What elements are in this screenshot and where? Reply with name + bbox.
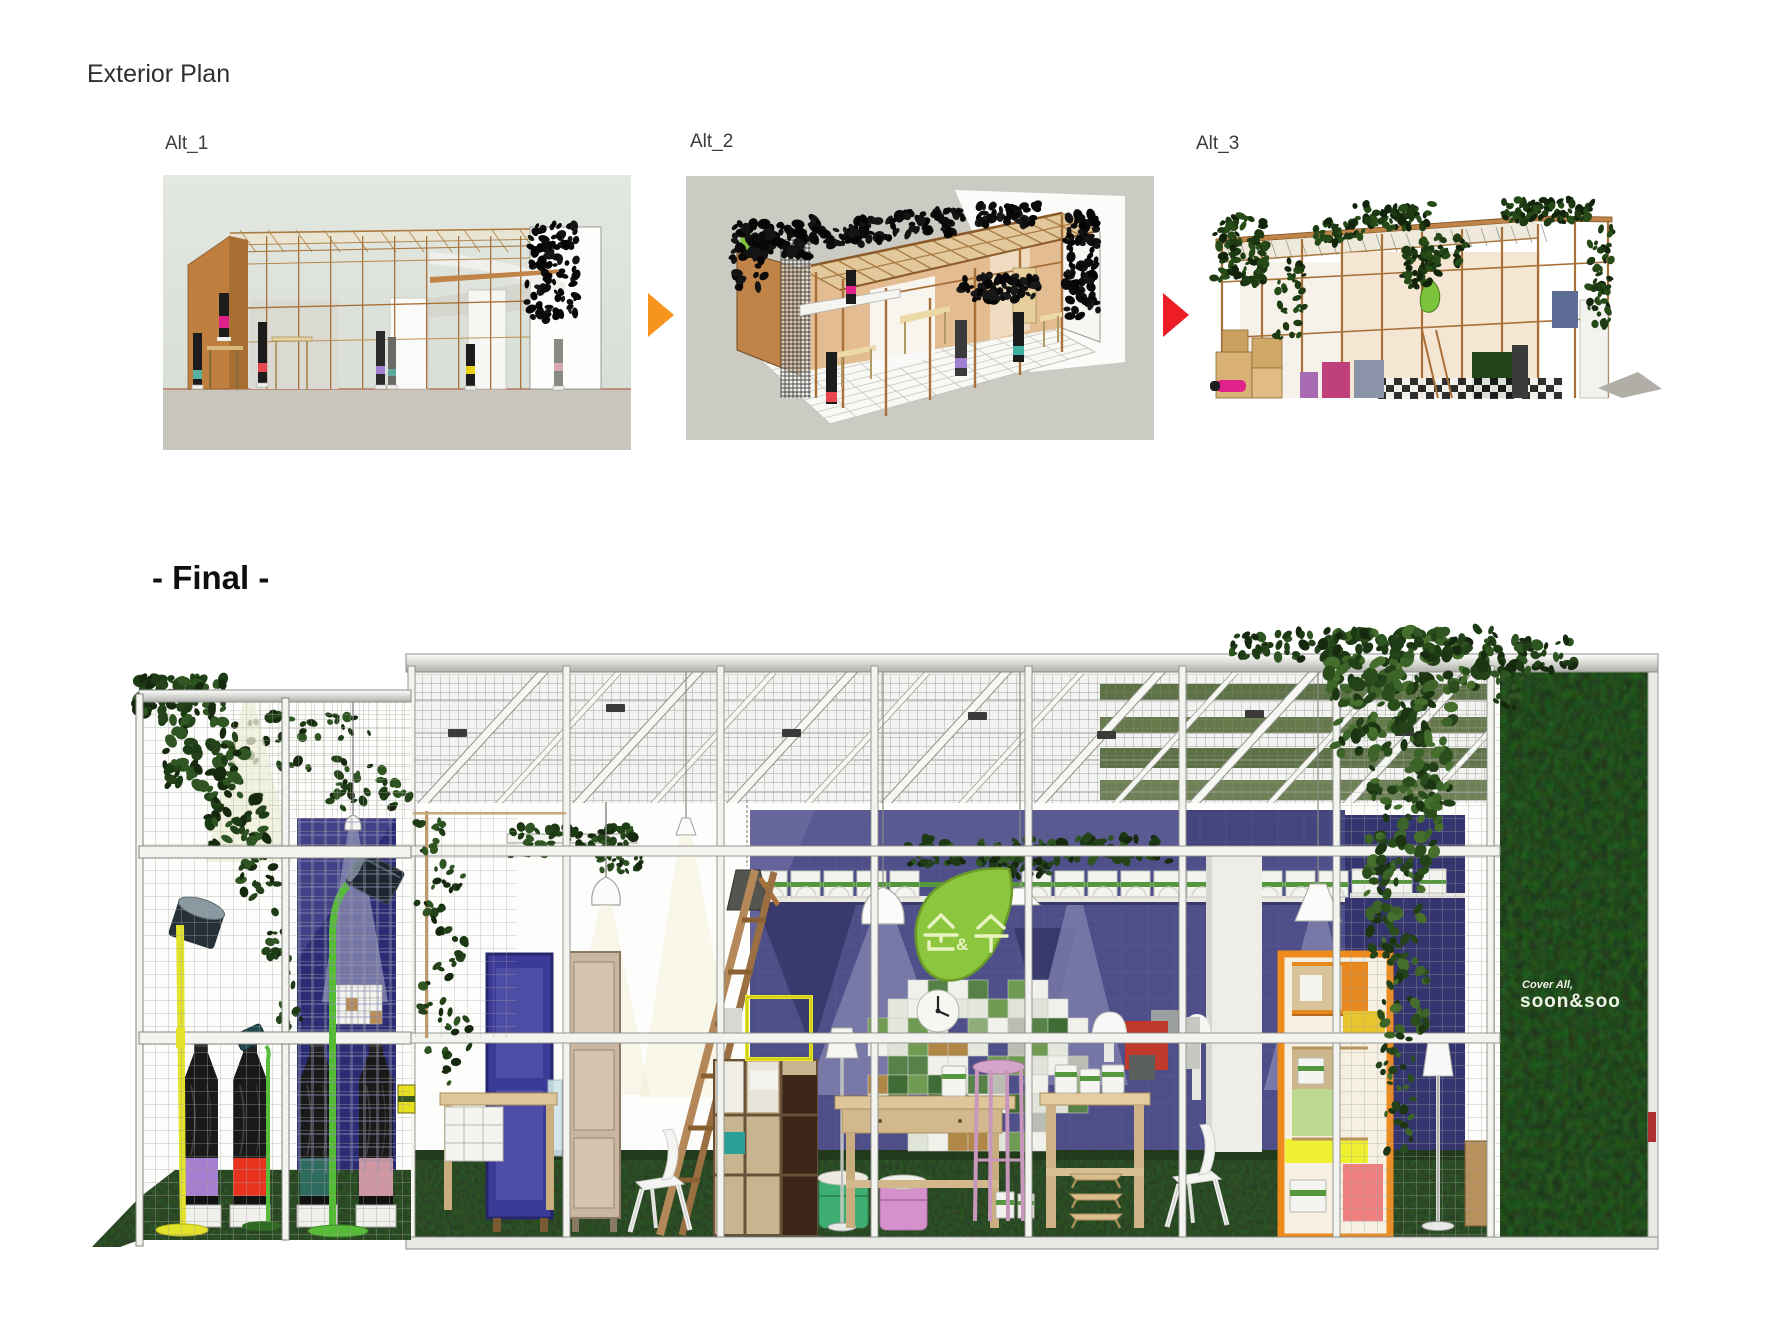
svg-text:- Final -: - Final - bbox=[152, 559, 269, 596]
svg-text:&: & bbox=[956, 935, 968, 954]
svg-text:Alt_3: Alt_3 bbox=[1196, 133, 1239, 154]
svg-text:Exterior Plan: Exterior Plan bbox=[87, 60, 230, 88]
svg-text:Alt_2: Alt_2 bbox=[690, 131, 733, 152]
svg-text:Alt_1: Alt_1 bbox=[165, 133, 208, 154]
svg-text:Cover All,: Cover All, bbox=[1522, 979, 1573, 991]
svg-text:soon&soo: soon&soo bbox=[1520, 991, 1621, 1012]
